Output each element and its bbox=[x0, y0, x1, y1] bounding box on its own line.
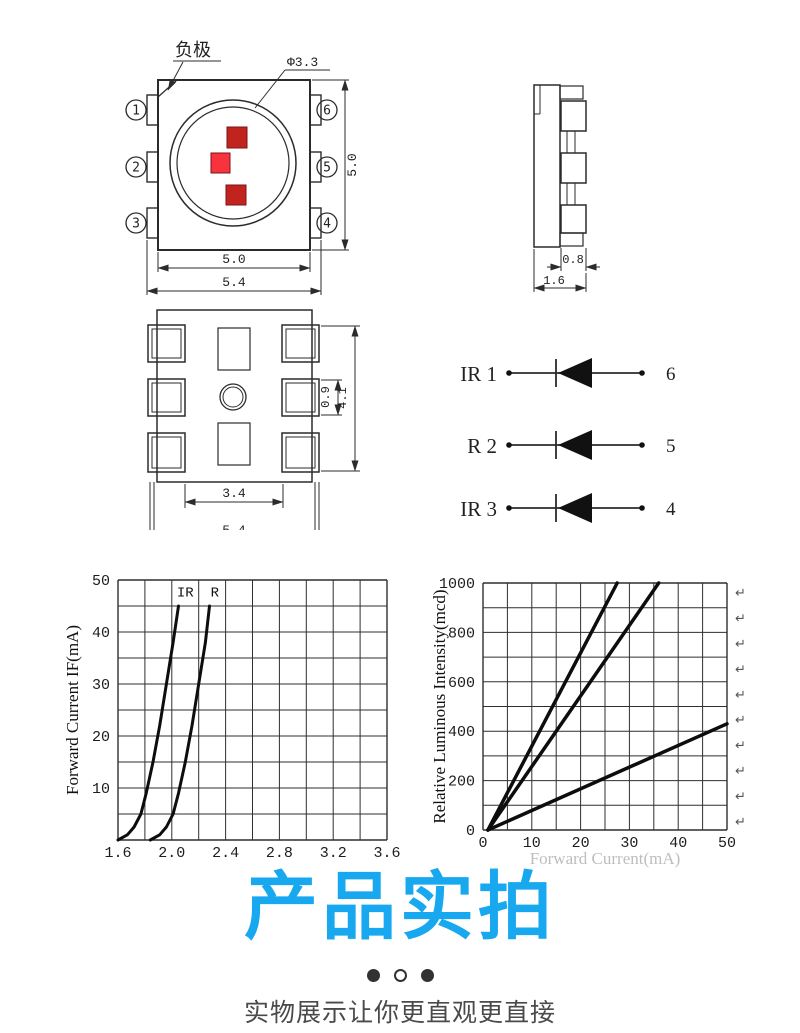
return-mark-icon: ↵ bbox=[735, 739, 746, 754]
page: 1 2 3 6 5 4 负极 Φ3.3 5.0 bbox=[0, 0, 800, 1033]
carousel-dot-1[interactable] bbox=[367, 969, 380, 982]
series-label: R bbox=[211, 586, 220, 602]
circuit-pin-label: 6 bbox=[666, 364, 676, 385]
y-tick-label: 50 bbox=[92, 573, 110, 590]
circuit-channel-label: IR 3 bbox=[460, 497, 497, 521]
led-chip-red-middle bbox=[211, 153, 230, 173]
side-pad-1 bbox=[561, 101, 586, 131]
x-tick-label: 2.4 bbox=[212, 845, 239, 862]
chamfer-mark bbox=[158, 80, 177, 97]
center-hole-inner bbox=[223, 387, 243, 407]
dim-bottom-outer: 5.4 bbox=[222, 275, 246, 290]
luminous-intensity-chart: 0102030405002004006008001000Relative Lum… bbox=[415, 558, 800, 873]
side-pad-3 bbox=[561, 205, 586, 233]
pin-number-1: 1 bbox=[132, 104, 140, 119]
x-tick-label: 3.2 bbox=[320, 845, 347, 862]
y-tick-label: 600 bbox=[448, 675, 475, 692]
return-mark-icon: ↵ bbox=[735, 688, 746, 703]
return-mark-icon: ↵ bbox=[735, 586, 746, 601]
diode-icon bbox=[558, 358, 592, 388]
return-mark-icon: ↵ bbox=[735, 790, 746, 805]
dim-side-height: 5.0 bbox=[345, 153, 360, 176]
x-tick-label: 3.6 bbox=[373, 845, 400, 862]
y-tick-label: 0 bbox=[466, 823, 475, 840]
return-mark-icon: ↵ bbox=[735, 764, 746, 779]
thermal-pad-top bbox=[218, 328, 250, 370]
circuit-pin-label: 4 bbox=[666, 499, 676, 520]
thermal-pad-bottom bbox=[218, 423, 250, 465]
y-axis-label: Forward Current IF(mA) bbox=[63, 625, 82, 795]
pin-number-5: 5 bbox=[323, 161, 331, 176]
side-bottom-tab bbox=[560, 233, 583, 246]
package-side-view: 0.8 1.6 bbox=[534, 85, 600, 292]
y-axis-label: Relative Luminous Intensity(mcd) bbox=[430, 589, 449, 823]
led-chip-ir-bottom bbox=[226, 185, 246, 205]
pin-number-6: 6 bbox=[323, 104, 331, 119]
lens-outer-circle bbox=[170, 100, 296, 226]
dim-body-width: 1.6 bbox=[543, 274, 565, 288]
package-top-view: 1 2 3 6 5 4 负极 Φ3.3 5.0 bbox=[126, 40, 360, 295]
y-tick-label: 200 bbox=[448, 774, 475, 791]
circuit-pin-label: 5 bbox=[666, 436, 676, 457]
return-mark-icon: ↵ bbox=[735, 713, 746, 728]
circuit-channel-label: R 2 bbox=[467, 434, 497, 458]
pin-number-2: 2 bbox=[132, 161, 140, 176]
y-tick-label: 30 bbox=[92, 677, 110, 694]
x-tick-label: 2.0 bbox=[158, 845, 185, 862]
pin-number-3: 3 bbox=[132, 217, 140, 232]
series-IR bbox=[118, 606, 179, 840]
negative-terminal-label: 负极 bbox=[175, 40, 211, 60]
pin-pad-5 bbox=[310, 152, 321, 182]
dim-pad-width: 0.8 bbox=[562, 253, 584, 267]
dim-pads-span: 4.1 bbox=[336, 387, 350, 409]
carousel-dot-2[interactable] bbox=[394, 969, 407, 982]
carousel-dots bbox=[0, 969, 800, 982]
center-hole-outer bbox=[220, 384, 246, 410]
carousel-dot-3[interactable] bbox=[421, 969, 434, 982]
section-title: 产品实拍 bbox=[0, 864, 800, 949]
y-tick-label: 400 bbox=[448, 724, 475, 741]
y-tick-label: 800 bbox=[448, 625, 475, 642]
pin-pad-3 bbox=[147, 208, 158, 238]
dim-bottom-inner: 5.0 bbox=[222, 252, 245, 267]
x-tick-label: 2.8 bbox=[266, 845, 293, 862]
y-tick-label: 20 bbox=[92, 729, 110, 746]
package-bottom-view: 3.4 5.4 0.9 4.1 bbox=[148, 310, 360, 538]
x-tick-label: 50 bbox=[718, 835, 736, 852]
return-mark-icon: ↵ bbox=[735, 611, 746, 626]
pin-pad-6 bbox=[310, 95, 321, 125]
technical-drawings: 1 2 3 6 5 4 负极 Φ3.3 5.0 bbox=[0, 0, 800, 558]
return-mark-icon: ↵ bbox=[735, 662, 746, 677]
section-caption: 实物展示让你更直观更直接 bbox=[0, 993, 800, 1029]
x-tick-label: 0 bbox=[478, 835, 487, 852]
side-top-tab bbox=[560, 86, 583, 99]
y-tick-label: 40 bbox=[92, 625, 110, 642]
circuit-channel-label: IR 1 bbox=[460, 362, 497, 386]
iv-curve-chart: 1.62.02.42.83.23.61020304050IRRForward C… bbox=[0, 558, 415, 873]
negative-terminal-leader bbox=[168, 62, 183, 90]
diode-icon bbox=[558, 430, 592, 460]
pin-pad-4 bbox=[310, 208, 321, 238]
dim-inner-width: 3.4 bbox=[222, 486, 246, 501]
y-tick-label: 10 bbox=[92, 781, 110, 798]
diode-icon bbox=[558, 493, 592, 523]
led-chip-ir-top bbox=[227, 127, 247, 148]
circuit-diagram: IR 1 6 R 2 5 IR 3 4 bbox=[460, 358, 676, 523]
series-label: IR bbox=[177, 586, 194, 602]
lens-diameter-leader bbox=[255, 70, 285, 108]
side-pad-2 bbox=[561, 153, 586, 183]
return-mark-icon: ↵ bbox=[735, 637, 746, 652]
pin-pad-1 bbox=[147, 95, 158, 125]
dim-pad-height: 0.9 bbox=[319, 386, 333, 408]
dim-outer-width-partial: 5.4 bbox=[222, 523, 246, 538]
return-mark-icon: ↵ bbox=[735, 815, 746, 830]
lens-diameter-label: Φ3.3 bbox=[287, 55, 318, 70]
pin-pad-2 bbox=[147, 152, 158, 182]
pin-number-4: 4 bbox=[323, 217, 331, 232]
x-tick-label: 1.6 bbox=[104, 845, 131, 862]
